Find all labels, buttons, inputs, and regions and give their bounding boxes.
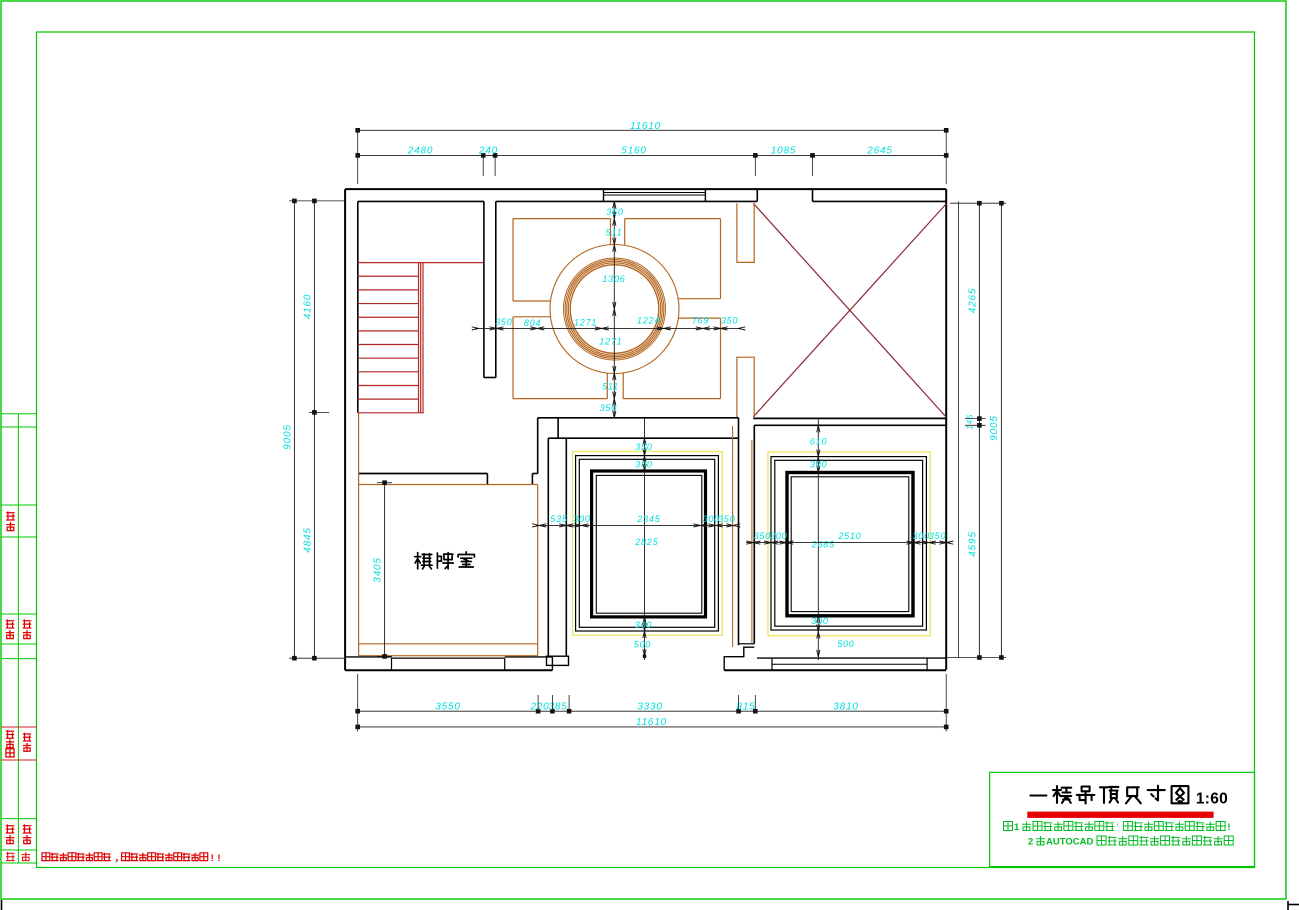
- svg-text:2: 2: [1028, 837, 1033, 848]
- svg-text:2480: 2480: [407, 145, 433, 156]
- svg-text:1271: 1271: [599, 337, 622, 347]
- svg-text:3810: 3810: [833, 701, 858, 712]
- svg-text:4265: 4265: [968, 288, 979, 313]
- svg-text:2510: 2510: [837, 531, 861, 541]
- svg-text:! !: ! !: [211, 853, 221, 864]
- svg-text:300: 300: [573, 514, 590, 524]
- svg-text:350: 350: [606, 207, 623, 217]
- svg-text:2345: 2345: [636, 514, 660, 524]
- svg-text:!: !: [1227, 822, 1230, 833]
- svg-text:511: 511: [606, 228, 623, 238]
- svg-text:500: 500: [634, 640, 651, 650]
- svg-text:5160: 5160: [621, 145, 646, 156]
- svg-text:350: 350: [929, 531, 946, 541]
- svg-text:350: 350: [600, 403, 617, 413]
- svg-text:3330: 3330: [637, 701, 662, 712]
- svg-text:240: 240: [478, 145, 498, 156]
- svg-text:3550: 3550: [435, 701, 460, 712]
- svg-text:610: 610: [810, 436, 827, 446]
- svg-text:804: 804: [524, 318, 541, 328]
- svg-text:350: 350: [718, 514, 735, 524]
- svg-text:2685: 2685: [811, 540, 835, 550]
- svg-text:350: 350: [754, 531, 771, 541]
- svg-text:4845: 4845: [303, 527, 314, 552]
- svg-text:145: 145: [966, 414, 975, 430]
- svg-text:11610: 11610: [630, 121, 661, 132]
- svg-text:4595: 4595: [968, 531, 979, 556]
- svg-text:1085: 1085: [771, 145, 796, 156]
- svg-text:1306: 1306: [602, 274, 625, 284]
- svg-text:385: 385: [548, 701, 567, 712]
- svg-text:300: 300: [770, 531, 787, 541]
- svg-text:2825: 2825: [634, 537, 658, 547]
- svg-text:4160: 4160: [303, 294, 314, 319]
- svg-text:AUTOCAD: AUTOCAD: [1046, 837, 1093, 848]
- svg-text:2645: 2645: [866, 145, 892, 156]
- svg-text:300: 300: [635, 620, 652, 630]
- svg-text:350: 350: [495, 317, 512, 327]
- svg-text:’: ’: [1116, 822, 1118, 832]
- svg-text:815: 815: [736, 701, 755, 712]
- svg-text:300: 300: [811, 616, 828, 626]
- svg-text:1271: 1271: [574, 318, 597, 328]
- svg-text:350: 350: [721, 316, 738, 326]
- svg-text:1: 1: [1014, 822, 1020, 833]
- svg-text:769: 769: [692, 316, 709, 326]
- svg-text:1:60: 1:60: [1196, 791, 1228, 808]
- svg-text:9005: 9005: [989, 415, 1000, 440]
- svg-text:300: 300: [635, 460, 652, 470]
- svg-text:535: 535: [550, 514, 568, 524]
- svg-text:，: ，: [115, 853, 124, 863]
- svg-text:1224: 1224: [637, 316, 660, 326]
- svg-text:511: 511: [602, 382, 619, 392]
- svg-text:9005: 9005: [283, 424, 294, 449]
- svg-text:3405: 3405: [373, 557, 384, 582]
- svg-text:500: 500: [837, 639, 854, 649]
- svg-text:11610: 11610: [636, 717, 667, 728]
- svg-text:350: 350: [635, 442, 652, 452]
- svg-text:220: 220: [529, 701, 549, 712]
- svg-text:300: 300: [810, 460, 827, 470]
- svg-text:300: 300: [912, 531, 929, 541]
